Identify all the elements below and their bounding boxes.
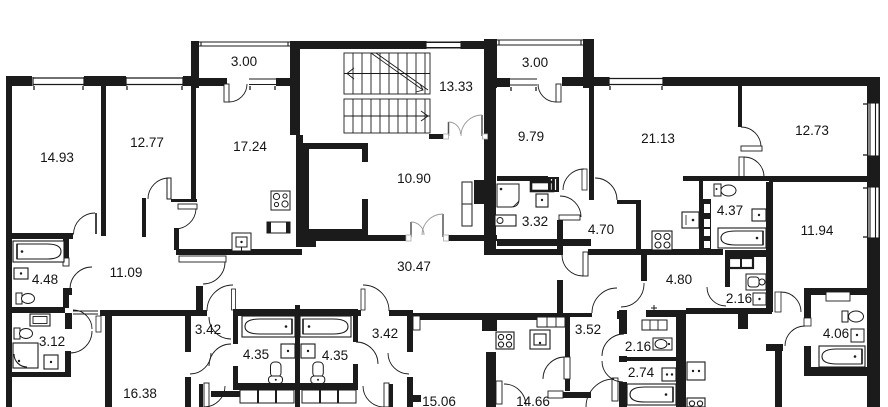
svg-text:3.00: 3.00 xyxy=(231,54,257,69)
svg-text:15.06: 15.06 xyxy=(422,394,456,407)
svg-text:14.66: 14.66 xyxy=(516,394,550,407)
svg-text:9.79: 9.79 xyxy=(518,129,544,144)
svg-text:10.90: 10.90 xyxy=(397,171,431,186)
svg-text:4.35: 4.35 xyxy=(322,348,348,363)
svg-text:11.94: 11.94 xyxy=(801,223,834,238)
svg-text:3.52: 3.52 xyxy=(575,322,601,337)
svg-text:2.16: 2.16 xyxy=(726,291,752,306)
svg-text:3.42: 3.42 xyxy=(195,322,221,337)
svg-text:12.73: 12.73 xyxy=(795,123,829,138)
svg-text:4.48: 4.48 xyxy=(32,272,58,287)
svg-text:4.80: 4.80 xyxy=(666,272,692,287)
svg-text:2.16: 2.16 xyxy=(625,339,651,354)
svg-text:11.09: 11.09 xyxy=(110,265,143,280)
svg-text:4.70: 4.70 xyxy=(588,222,614,237)
svg-text:17.24: 17.24 xyxy=(233,139,267,154)
svg-text:21.13: 21.13 xyxy=(641,131,675,146)
svg-text:16.38: 16.38 xyxy=(123,386,157,401)
svg-text:3.42: 3.42 xyxy=(372,326,398,341)
svg-text:12.77: 12.77 xyxy=(130,135,164,150)
svg-text:14.93: 14.93 xyxy=(40,150,74,165)
svg-text:13.33: 13.33 xyxy=(439,79,473,94)
svg-text:4.37: 4.37 xyxy=(717,203,743,218)
svg-text:3.12: 3.12 xyxy=(39,334,65,349)
svg-text:2.74: 2.74 xyxy=(628,365,655,380)
svg-text:3.00: 3.00 xyxy=(522,55,548,70)
svg-text:4.06: 4.06 xyxy=(823,326,849,341)
svg-text:4.35: 4.35 xyxy=(243,347,269,362)
svg-text:30.47: 30.47 xyxy=(397,259,431,274)
svg-text:3.32: 3.32 xyxy=(522,214,548,229)
